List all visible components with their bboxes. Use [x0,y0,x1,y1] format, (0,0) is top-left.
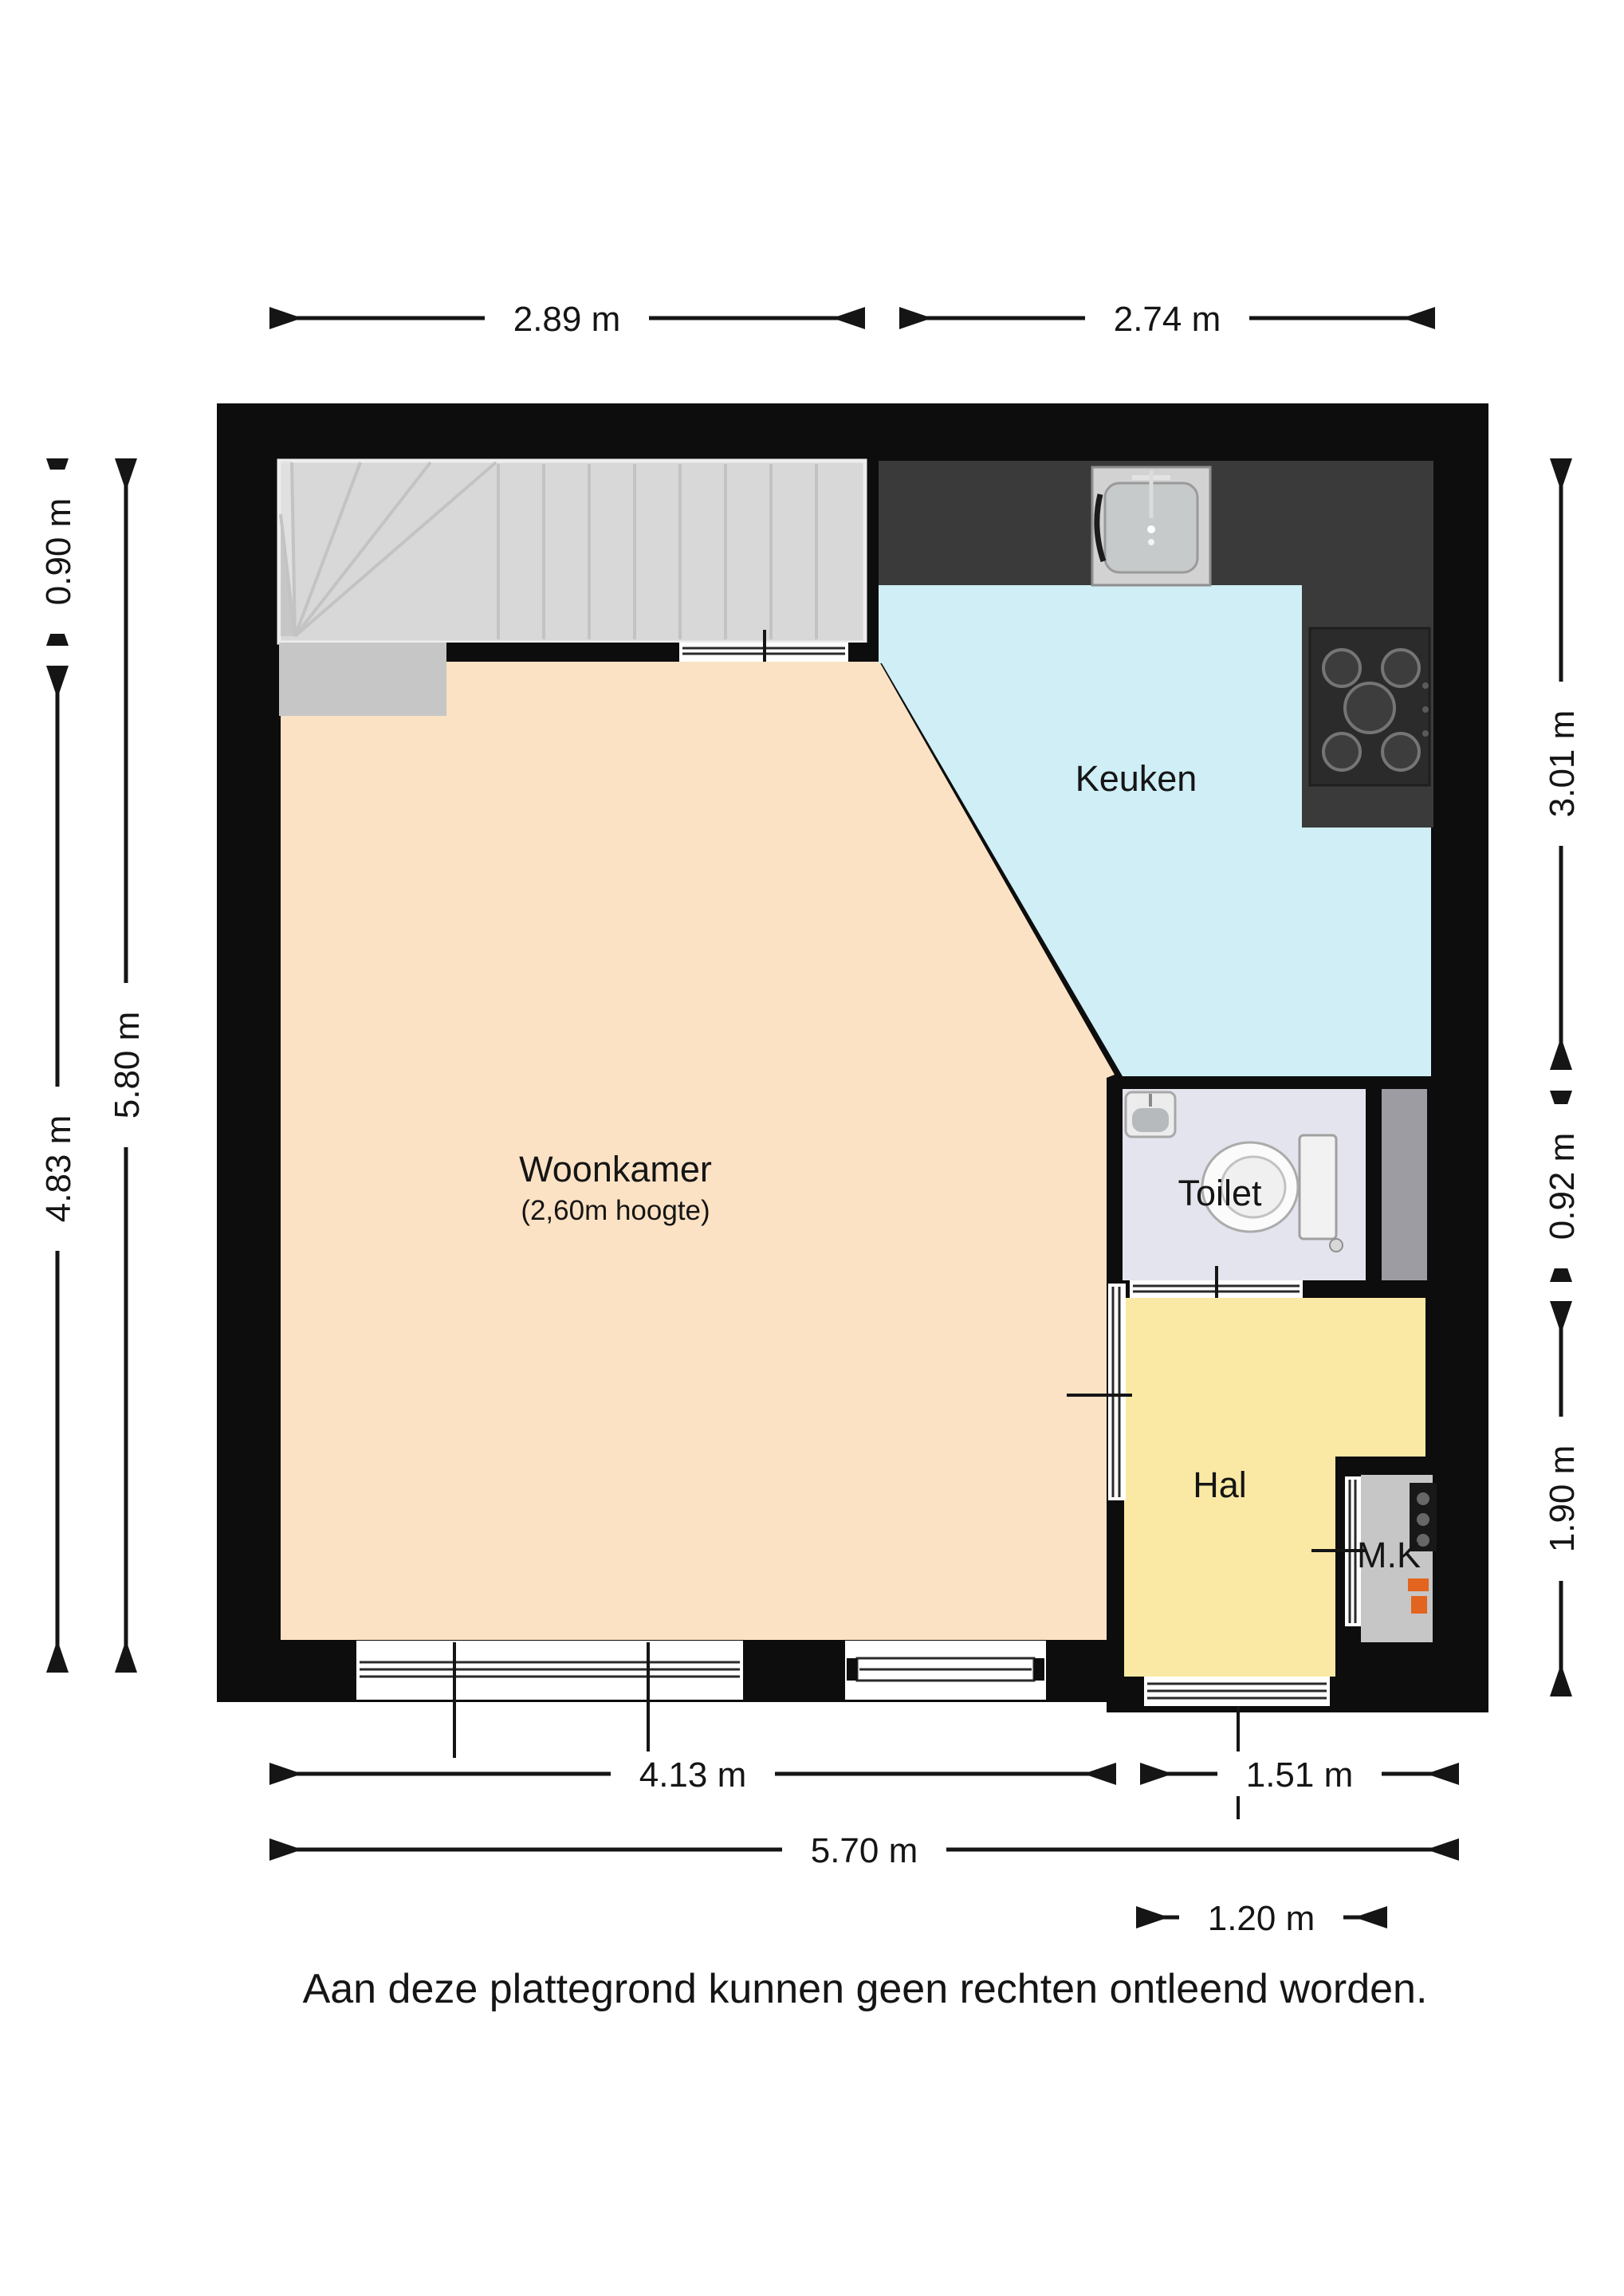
dim-top-right: 2.74 m [899,296,1435,340]
dim-right-top-label: 3.01 m [1543,710,1582,818]
kitchen-sink [1092,467,1210,585]
dim-right-bottom: 1.90 m [1539,1301,1583,1696]
dim-right-middle-label: 0.92 m [1543,1133,1582,1240]
floorplan-canvas: Woonkamer (2,60m hoogte) Keuken Toilet H… [0,0,1624,2296]
dim-left-outer: 5.80 m [104,458,148,1673]
meterkast-label: M.K [1357,1535,1421,1575]
dim-top-left: 2.89 m [269,296,865,340]
living-room-window-large [356,1641,743,1758]
stove [1310,628,1429,785]
dim-top-left-label: 2.89 m [513,300,621,339]
keuken-label: Keuken [1075,758,1197,799]
toilet-label: Toilet [1178,1173,1262,1213]
dim-bottom-total: 5.70 m [269,1827,1459,1872]
dim-left-bottom: 4.83 m [35,666,80,1673]
dim-right-middle: 0.92 m [1539,1091,1583,1282]
dim-left-top-label: 0.90 m [39,498,78,606]
dim-top-right-label: 2.74 m [1114,300,1221,339]
hal-label: Hal [1193,1464,1247,1505]
dim-bottom-hal: 1.51 m [1140,1751,1459,1796]
dim-right-bottom-label: 1.90 m [1543,1445,1582,1553]
dim-left-outer-label: 5.80 m [108,1012,147,1119]
duct-shaft [1382,1089,1427,1280]
stair-landing [279,643,446,716]
woonkamer-height-note: (2,60m hoogte) [521,1195,710,1226]
front-door [1144,1677,1330,1819]
dim-bottom-window-label: 4.13 m [639,1755,747,1795]
dim-right-top: 3.01 m [1539,458,1583,1070]
dim-bottom-door-label: 1.20 m [1208,1899,1315,1938]
dim-bottom-hal-label: 1.51 m [1246,1755,1354,1795]
disclaimer-text: Aan deze plattegrond kunnen geen rechten… [303,1966,1428,2012]
living-room-window-small [845,1641,1046,1700]
toilet-hand-basin [1126,1092,1175,1137]
wall-trim [217,1702,1107,1712]
floorplan-page: Woonkamer (2,60m hoogte) Keuken Toilet H… [0,0,1624,2296]
dim-bottom-door: 1.20 m [1136,1895,1387,1940]
dim-left-bottom-label: 4.83 m [39,1115,78,1223]
dim-left-top: 0.90 m [35,458,80,646]
dim-bottom-total-label: 5.70 m [811,1831,918,1870]
woonkamer-label: Woonkamer [519,1149,712,1189]
dim-bottom-window: 4.13 m [269,1751,1116,1796]
